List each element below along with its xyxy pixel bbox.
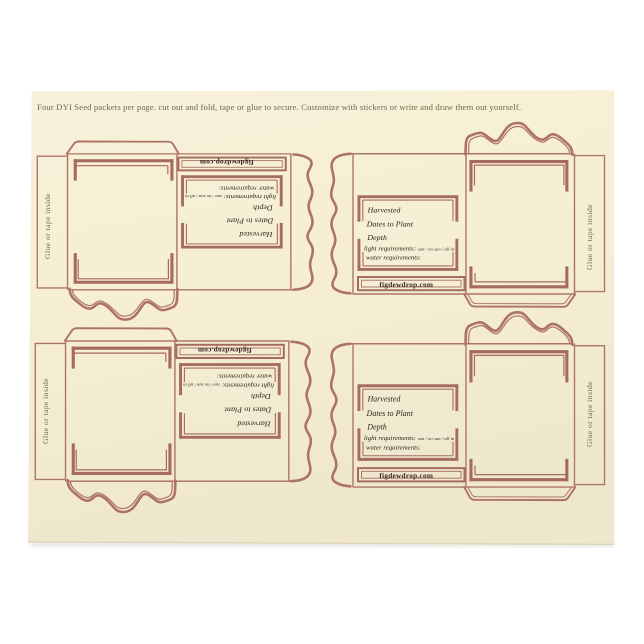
svg-text:Four DYI Seed packets per page: Four DYI Seed packets per page. cut out … <box>37 102 521 112</box>
svg-text:Glue or tape inside: Glue or tape inside <box>585 381 594 447</box>
svg-text:figdewdrop.com: figdewdrop.com <box>200 158 254 167</box>
svg-text:figdewdrop.com: figdewdrop.com <box>379 471 433 480</box>
svg-text:figdewdrop.com: figdewdrop.com <box>198 346 252 355</box>
svg-text:figdewdrop.com: figdewdrop.com <box>379 280 433 289</box>
svg-text:Glue or tape inside: Glue or tape inside <box>585 204 594 270</box>
svg-text:Glue or tape inside: Glue or tape inside <box>41 378 50 444</box>
svg-text:Glue or tape inside: Glue or tape inside <box>43 193 52 259</box>
